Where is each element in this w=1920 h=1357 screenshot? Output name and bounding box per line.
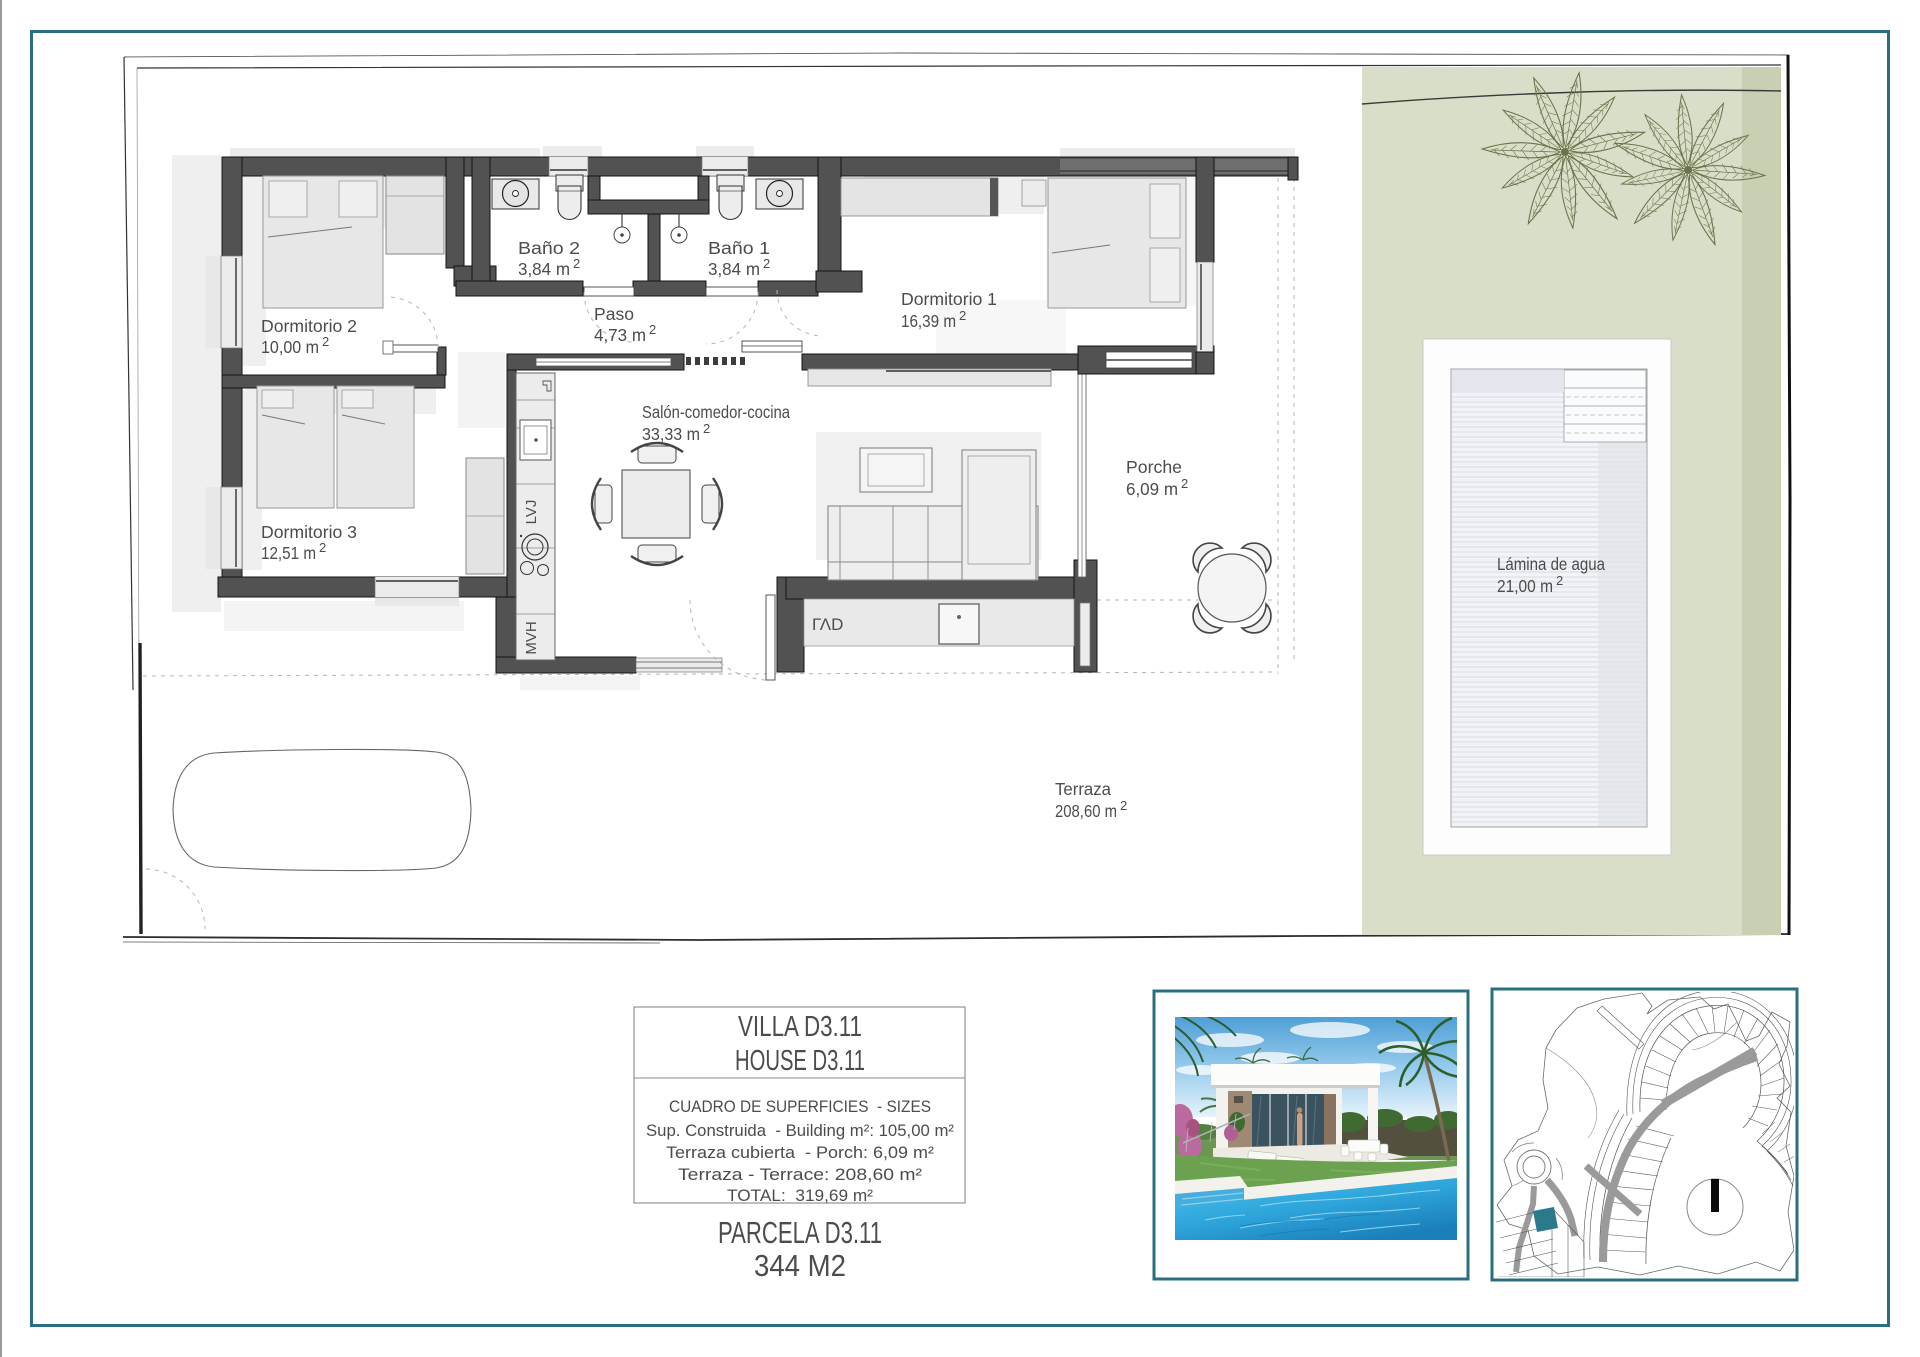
svg-text:Porche: Porche [1126,457,1182,477]
svg-text:Baño 2: Baño 2 [518,238,580,258]
svg-text:33,33 m: 33,33 m [642,424,700,444]
svg-text:2: 2 [1556,573,1563,588]
svg-text:HOUSE D3.11: HOUSE D3.11 [735,1045,865,1077]
svg-text:Sup. Construida - Building m²: Sup. Construida - Building m²: 105,00 m² [646,1121,954,1140]
svg-text:6,09 m: 6,09 m [1126,479,1178,499]
svg-text:CUADRO DE SUPERFICIES - SIZES: CUADRO DE SUPERFICIES - SIZES [669,1097,931,1116]
svg-text:2: 2 [649,322,656,337]
svg-text:VILLA D3.11: VILLA D3.11 [738,1011,862,1043]
svg-text:2: 2 [322,334,329,349]
svg-text:Terraza - Terrace: 208,60 m²: Terraza - Terrace: 208,60 m² [678,1165,922,1184]
svg-text:2: 2 [573,256,580,271]
svg-text:3,84 m: 3,84 m [518,259,570,279]
svg-text:MVH: MVH [523,621,540,654]
svg-text:ΓΛD: ΓΛD [812,615,843,634]
svg-text:PARCELA D3.11: PARCELA D3.11 [718,1215,882,1250]
svg-text:2: 2 [959,308,966,323]
svg-text:16,39 m: 16,39 m [901,311,956,331]
svg-text:2: 2 [703,421,710,436]
svg-text:TOTAL: 319,69 m²: TOTAL: 319,69 m² [727,1186,873,1205]
svg-text:Dormitorio 1: Dormitorio 1 [901,289,997,309]
svg-text:Terraza: Terraza [1055,779,1111,799]
svg-text:LVJ: LVJ [523,500,540,525]
svg-text:208,60 m: 208,60 m [1055,801,1117,821]
svg-text:3,84 m: 3,84 m [708,259,760,279]
svg-text:Dormitorio 3: Dormitorio 3 [261,522,357,542]
svg-text:4,73 m: 4,73 m [594,325,646,345]
svg-text:Lámina de agua: Lámina de agua [1497,554,1605,574]
svg-text:Salón-comedor-cocina: Salón-comedor-cocina [642,402,790,422]
svg-text:Dormitorio 2: Dormitorio 2 [261,316,357,336]
svg-text:Baño 1: Baño 1 [708,238,770,258]
svg-text:Terraza cubierta - Porch: 6,0: Terraza cubierta - Porch: 6,09 m² [666,1143,934,1162]
svg-text:2: 2 [1181,476,1188,491]
svg-text:2: 2 [1120,798,1127,813]
svg-text:2: 2 [763,256,770,271]
svg-text:2: 2 [319,540,326,555]
svg-text:Paso: Paso [594,304,634,324]
svg-text:344 M2: 344 M2 [754,1248,846,1283]
svg-text:21,00 m: 21,00 m [1497,576,1553,596]
svg-text:10,00 m: 10,00 m [261,337,319,357]
svg-text:12,51 m: 12,51 m [261,543,316,563]
